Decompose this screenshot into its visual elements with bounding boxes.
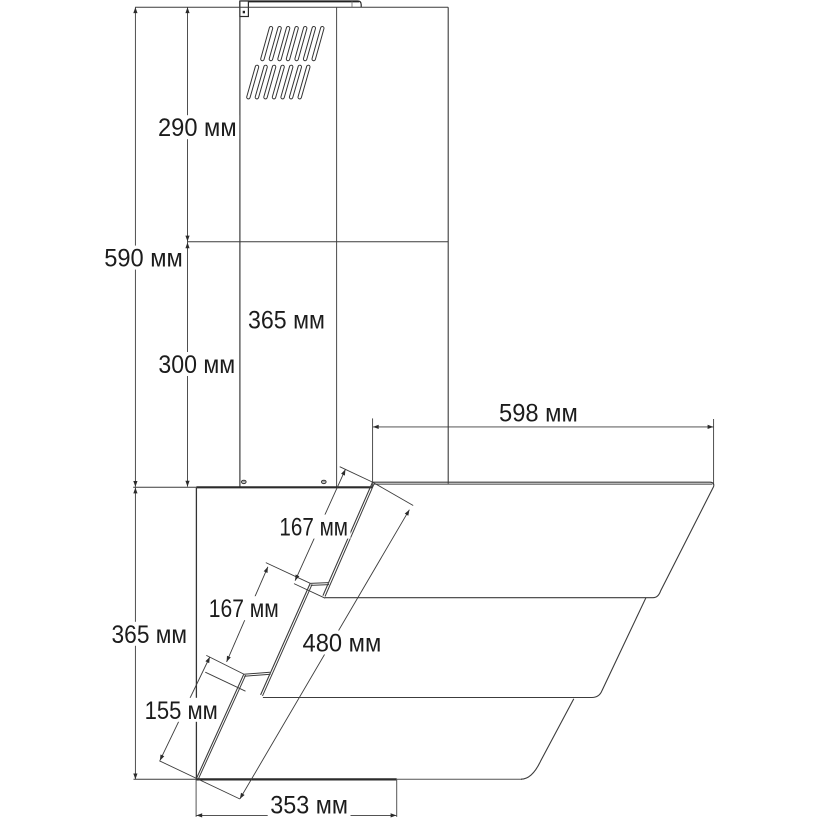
svg-text:167 мм: 167 мм: [279, 514, 348, 542]
svg-text:590 мм: 590 мм: [104, 245, 183, 273]
svg-text:155 мм: 155 мм: [145, 697, 218, 725]
svg-text:300 мм: 300 мм: [158, 351, 235, 379]
svg-text:167 мм: 167 мм: [209, 595, 279, 623]
svg-text:365 мм: 365 мм: [112, 621, 188, 649]
svg-text:365 мм: 365 мм: [248, 306, 325, 334]
svg-text:353 мм: 353 мм: [270, 791, 348, 819]
svg-text:598 мм: 598 мм: [499, 399, 578, 427]
svg-text:480 мм: 480 мм: [303, 630, 382, 658]
svg-text:290 мм: 290 мм: [158, 114, 237, 142]
